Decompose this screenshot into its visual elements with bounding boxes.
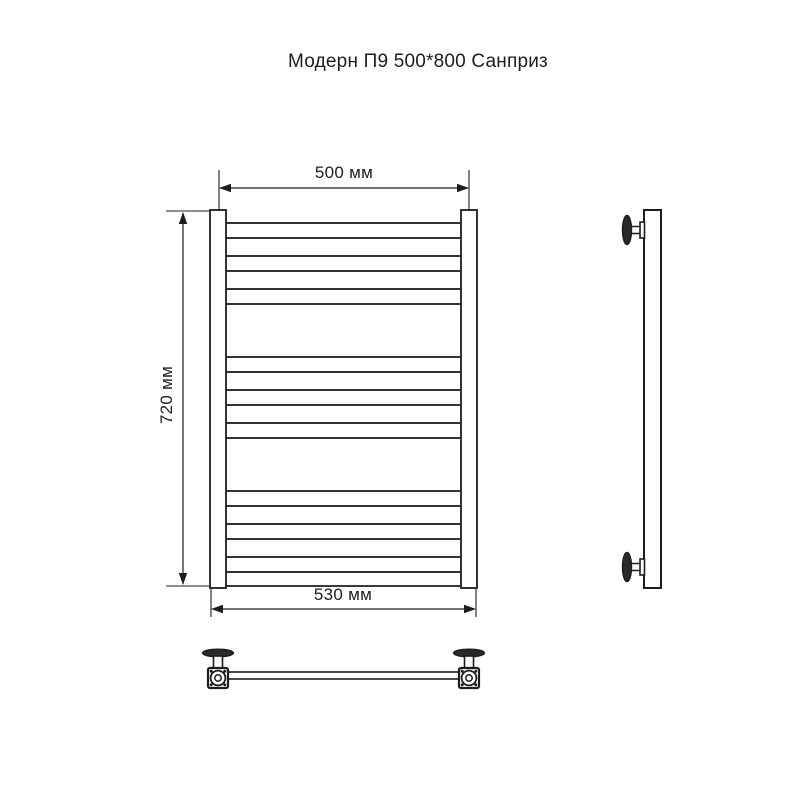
dimension-arrow [457, 184, 469, 192]
rail [225, 357, 462, 372]
rail [225, 223, 462, 238]
side-view [623, 210, 662, 588]
front-view [210, 210, 477, 588]
wall-bracket [623, 553, 645, 582]
rail [225, 256, 462, 271]
rail [225, 289, 462, 304]
bolt-dot [210, 683, 213, 686]
side-post [644, 210, 661, 588]
rail [225, 423, 462, 438]
technical-drawing-svg [0, 0, 800, 800]
bracket-collar [640, 222, 645, 238]
drawing-page: Модерн П9 500*800 Санприз 500 мм 720 мм … [0, 0, 800, 800]
rail [225, 390, 462, 405]
bolt-dot [474, 683, 477, 686]
bolt-dot [210, 670, 213, 673]
dimension-label-top-width: 500 мм [315, 163, 373, 183]
bottom-view [203, 649, 485, 688]
rail [225, 557, 462, 572]
bolt-dot [474, 670, 477, 673]
wall-flange-disc [623, 553, 632, 582]
rail [225, 524, 462, 539]
left-post [210, 210, 226, 588]
dimension-arrow [211, 605, 223, 613]
fitting-stem [465, 656, 474, 668]
dimension-arrow [179, 573, 187, 585]
bracket-collar [640, 559, 645, 575]
wall-bracket [623, 216, 645, 245]
right-post [461, 210, 477, 588]
bolt-dot [223, 670, 226, 673]
bottom-fitting [203, 649, 234, 688]
fitting-stem [214, 656, 223, 668]
bottom-tube [228, 672, 459, 679]
dimension-label-bottom-width: 530 мм [314, 585, 372, 605]
wall-flange-disc [623, 216, 632, 245]
drawing-title: Модерн П9 500*800 Санприз [288, 51, 548, 73]
dimension-arrow [464, 605, 476, 613]
bottom-fitting [454, 649, 485, 688]
bolt-dot [461, 683, 464, 686]
dimension-arrow [179, 212, 187, 224]
bolt-dot [461, 670, 464, 673]
dimension-label-height: 720 мм [157, 366, 177, 424]
dimension-arrow [219, 184, 231, 192]
rail [225, 491, 462, 506]
bolt-dot [223, 683, 226, 686]
